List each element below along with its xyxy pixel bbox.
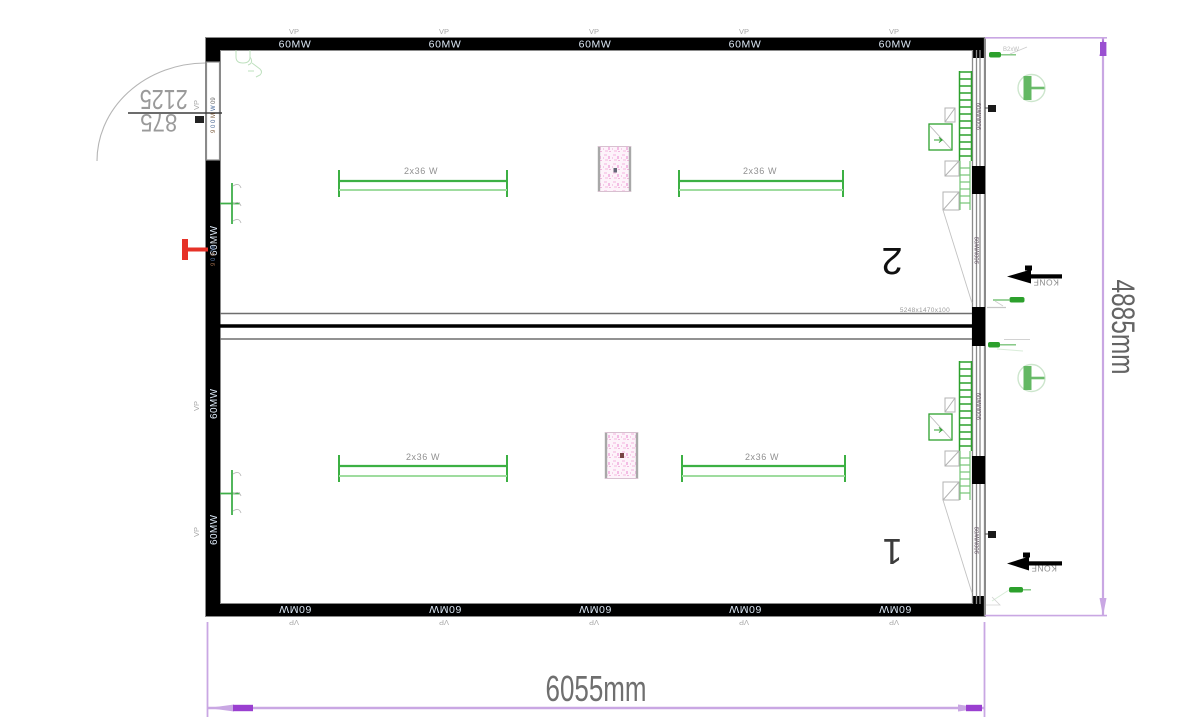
svg-text:2x36 W: 2x36 W xyxy=(743,166,777,176)
svg-text:2: 2 xyxy=(881,239,902,281)
svg-text:1: 1 xyxy=(882,531,902,572)
svg-text:60MW: 60MW xyxy=(729,39,762,51)
svg-text:60MW: 60MW xyxy=(209,388,220,419)
svg-text:VP: VP xyxy=(889,618,899,627)
svg-text:VP: VP xyxy=(192,401,201,411)
svg-text:60MW: 60MW xyxy=(429,39,462,51)
svg-text:VP: VP xyxy=(889,27,899,36)
svg-text:KONF: KONF xyxy=(1031,564,1057,574)
svg-text:2x36 W: 2x36 W xyxy=(404,166,438,176)
svg-text:60MW: 60MW xyxy=(279,39,312,51)
svg-text:VP: VP xyxy=(739,618,749,627)
svg-text:875: 875 xyxy=(140,108,177,136)
svg-text:60MW: 60MW xyxy=(729,603,762,615)
svg-text:VP: VP xyxy=(589,27,599,36)
svg-text:60MW: 60MW xyxy=(279,603,312,615)
svg-text:KONF: KONF xyxy=(1033,278,1059,288)
svg-text:60MW: 60MW xyxy=(579,39,612,51)
svg-text:60MW: 60MW xyxy=(579,603,612,615)
svg-text:900MW09: 900MW09 xyxy=(975,236,981,264)
svg-text:60MW: 60MW xyxy=(209,514,220,545)
svg-text:M: M xyxy=(211,113,217,118)
svg-text:6055mm: 6055mm xyxy=(546,668,647,709)
svg-text:60MW: 60MW xyxy=(879,603,912,615)
svg-text:VP: VP xyxy=(739,27,749,36)
svg-text:W: W xyxy=(211,105,217,111)
svg-text:VP: VP xyxy=(192,527,201,537)
svg-text:B2xW: B2xW xyxy=(1003,47,1019,53)
svg-text:VP: VP xyxy=(289,27,299,36)
svg-text:2x36 W: 2x36 W xyxy=(745,452,779,462)
svg-text:60MW: 60MW xyxy=(429,603,462,615)
svg-text:VP: VP xyxy=(589,618,599,627)
svg-text:VP: VP xyxy=(192,100,201,110)
svg-text:900MW09: 900MW09 xyxy=(977,102,983,130)
svg-text:900MW09: 900MW09 xyxy=(977,392,983,420)
svg-text:VP: VP xyxy=(289,618,299,627)
svg-text:4885mm: 4885mm xyxy=(1105,280,1141,375)
svg-text:VP: VP xyxy=(439,27,449,36)
svg-text:W: W xyxy=(211,245,217,251)
svg-text:900MW09: 900MW09 xyxy=(975,526,981,554)
svg-text:2x36 W: 2x36 W xyxy=(406,452,440,462)
svg-text:VP: VP xyxy=(439,618,449,627)
svg-text:60MW: 60MW xyxy=(879,39,912,51)
svg-text:09: 09 xyxy=(211,97,217,104)
svg-text:5248x1470x100: 5248x1470x100 xyxy=(900,307,950,314)
